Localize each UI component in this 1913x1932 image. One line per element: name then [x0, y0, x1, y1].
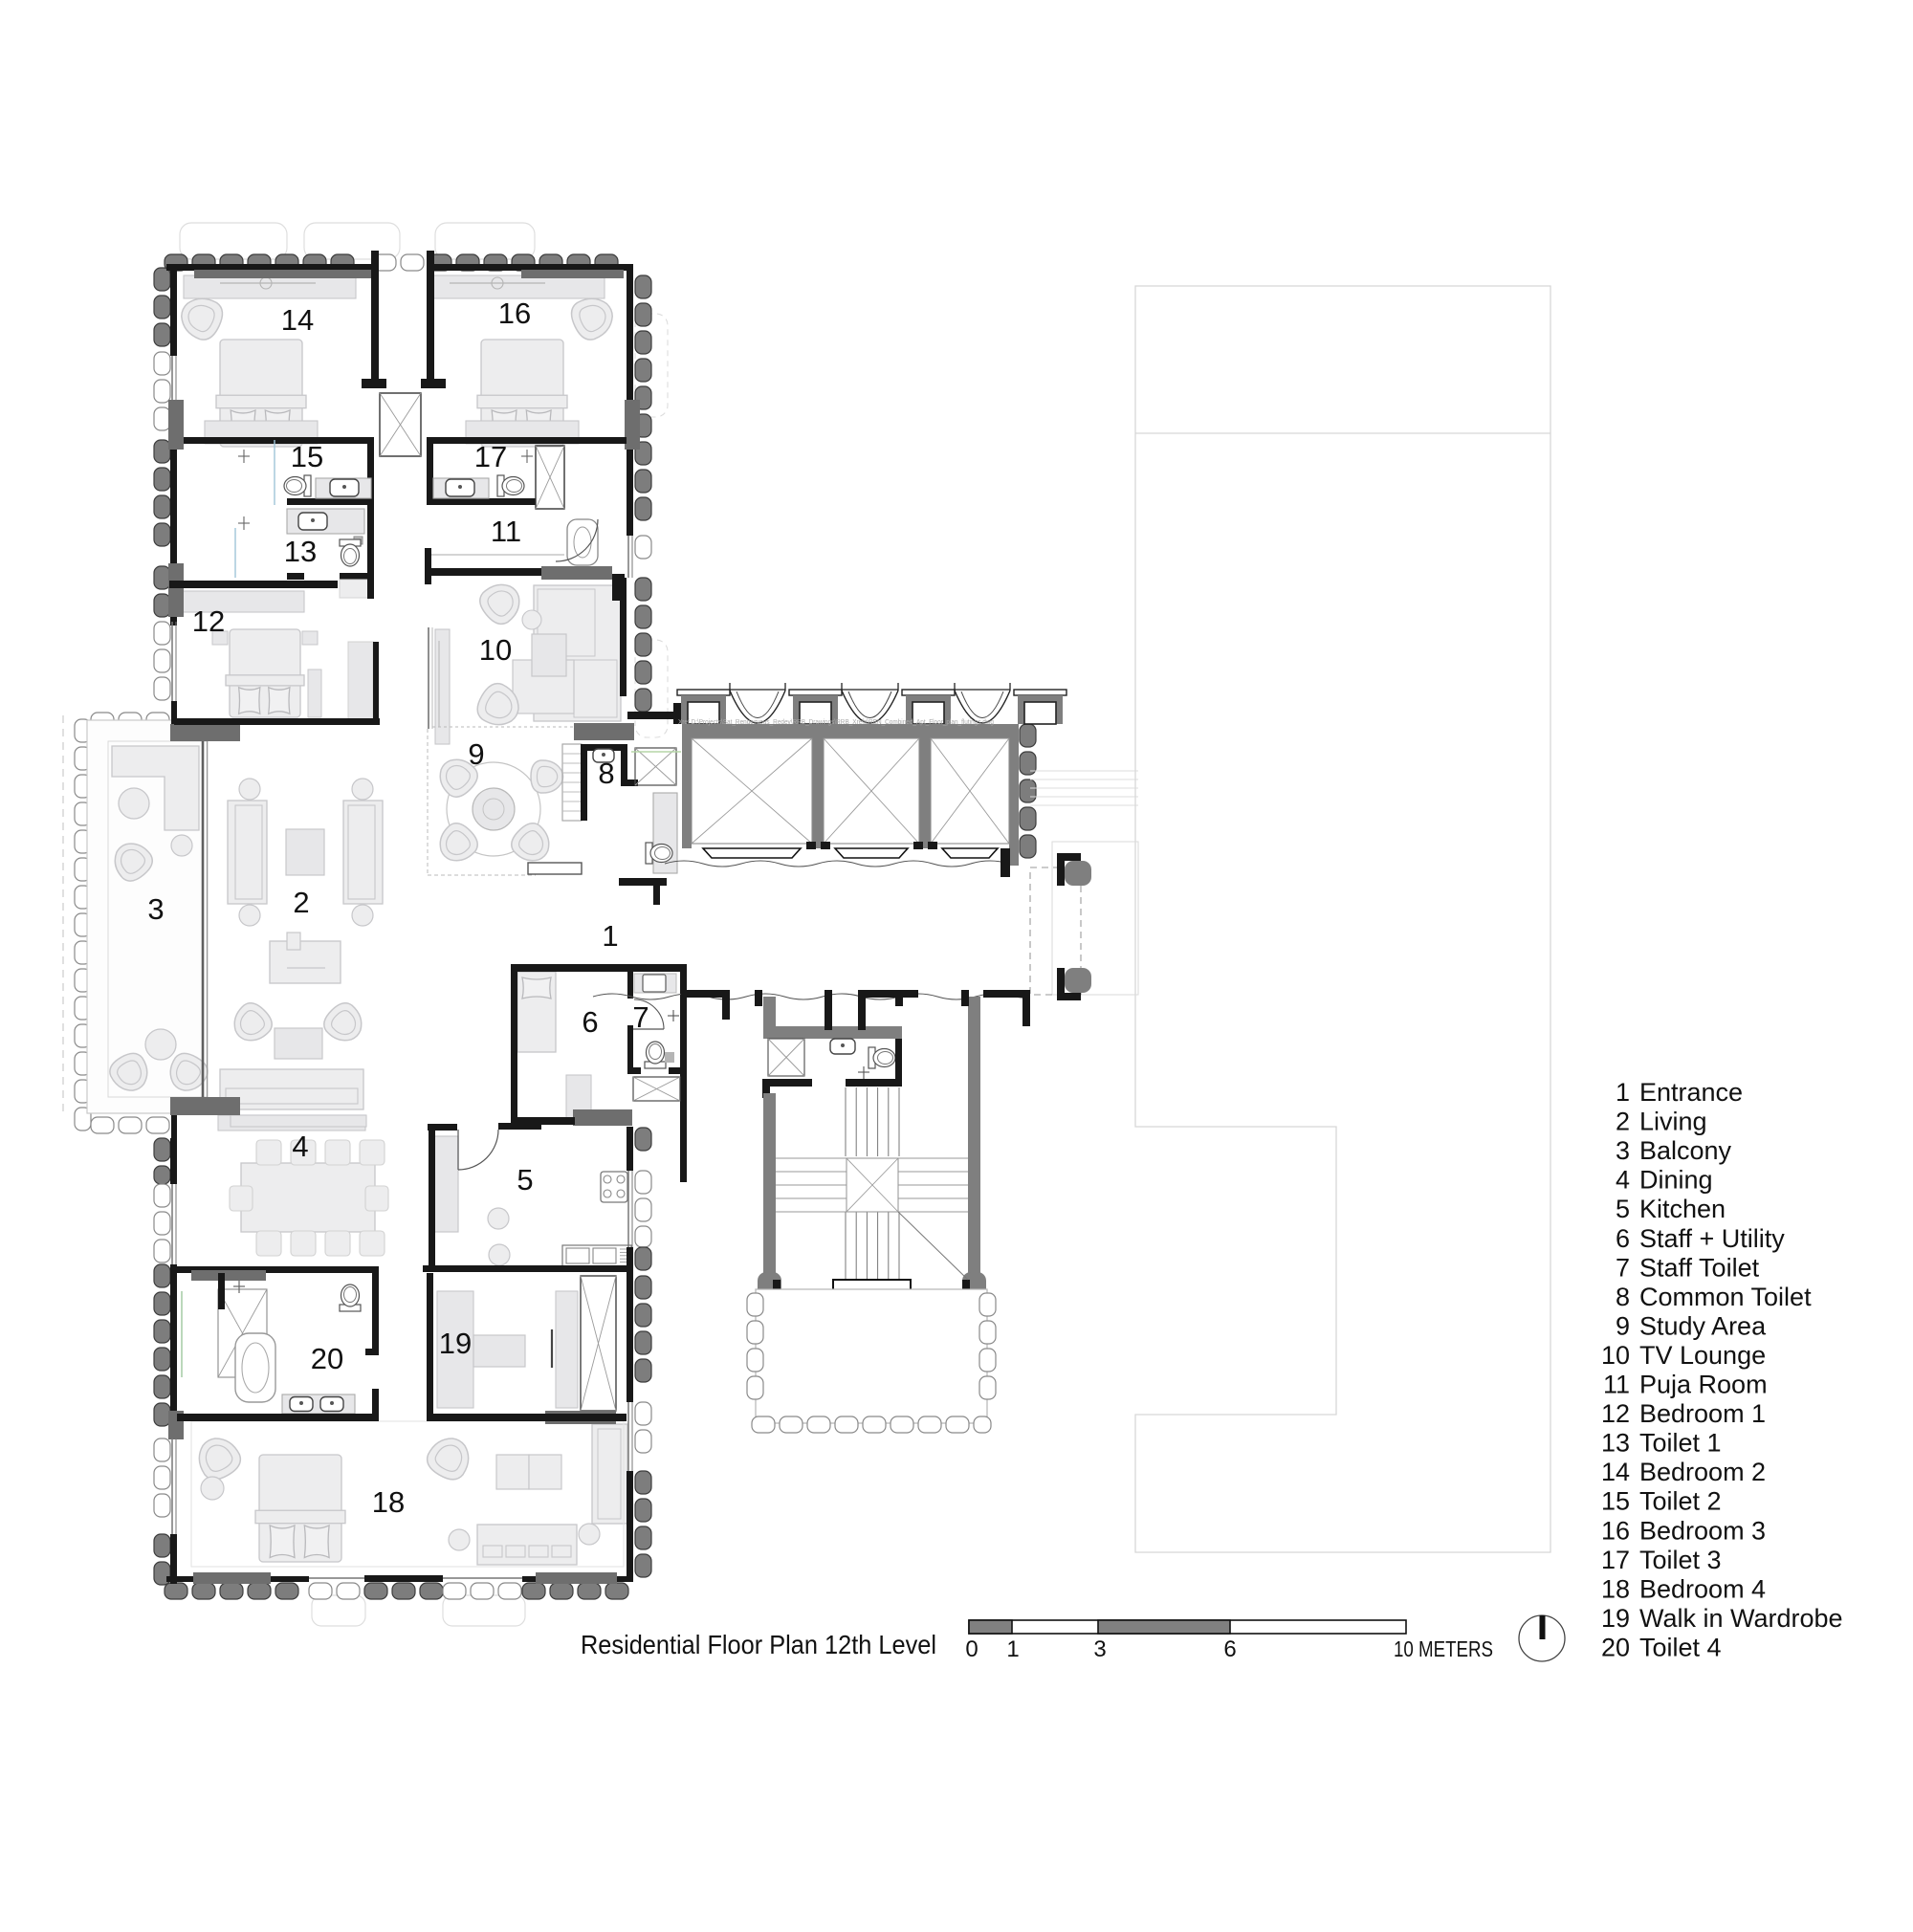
svg-text:Living: Living — [1639, 1108, 1707, 1136]
svg-text:6: 6 — [1223, 1636, 1236, 1662]
svg-text:20: 20 — [311, 1342, 343, 1375]
svg-text:13: 13 — [284, 535, 317, 568]
svg-text:12: 12 — [1601, 1399, 1630, 1428]
svg-text:3: 3 — [147, 892, 164, 926]
svg-text:11: 11 — [491, 515, 521, 548]
svg-text:3: 3 — [1616, 1136, 1630, 1165]
svg-text:Common Toilet: Common Toilet — [1639, 1283, 1812, 1311]
svg-text:2: 2 — [1616, 1108, 1630, 1136]
svg-text:3: 3 — [1093, 1636, 1106, 1662]
svg-text:10 METERS: 10 METERS — [1394, 1636, 1493, 1661]
svg-text:Dining: Dining — [1639, 1166, 1713, 1195]
svg-text:Entrance: Entrance — [1639, 1078, 1743, 1107]
svg-text:0: 0 — [965, 1636, 978, 1662]
svg-text:Toilet 4: Toilet 4 — [1639, 1633, 1722, 1661]
svg-text:TV Lounge: TV Lounge — [1639, 1341, 1766, 1370]
svg-text:18: 18 — [372, 1485, 405, 1519]
svg-text:20: 20 — [1601, 1633, 1630, 1661]
svg-text:16: 16 — [498, 296, 531, 330]
svg-text:9: 9 — [1616, 1311, 1630, 1340]
svg-text:13: 13 — [1601, 1429, 1630, 1458]
svg-text:4: 4 — [1616, 1166, 1630, 1195]
svg-text:14: 14 — [1601, 1458, 1630, 1486]
svg-text:12: 12 — [192, 604, 225, 638]
svg-text:Puja Room: Puja Room — [1639, 1371, 1768, 1399]
svg-text:Toilet 3: Toilet 3 — [1639, 1546, 1722, 1574]
svg-text:Balcony: Balcony — [1639, 1136, 1732, 1165]
svg-text:16: 16 — [1601, 1516, 1630, 1545]
svg-text:1: 1 — [602, 919, 618, 953]
svg-text:11: 11 — [1603, 1371, 1630, 1399]
svg-text:Study Area: Study Area — [1639, 1311, 1767, 1340]
svg-text:18: 18 — [1601, 1574, 1630, 1603]
svg-text:Bedroom 4: Bedroom 4 — [1639, 1574, 1766, 1603]
svg-text:1: 1 — [1616, 1078, 1630, 1107]
svg-text:Bedroom 3: Bedroom 3 — [1639, 1516, 1766, 1545]
svg-text:Toilet 1: Toilet 1 — [1639, 1429, 1722, 1458]
svg-text:15: 15 — [291, 440, 323, 473]
svg-text:8: 8 — [598, 757, 614, 790]
svg-text:Staff + Utility: Staff + Utility — [1639, 1224, 1785, 1253]
svg-text:9: 9 — [468, 737, 484, 771]
svg-text:6: 6 — [1616, 1224, 1630, 1253]
svg-text:14: 14 — [281, 303, 314, 337]
svg-text:7: 7 — [632, 1000, 649, 1034]
svg-text:15: 15 — [1601, 1487, 1630, 1516]
svg-text:Xref D:\Projects\Sat_Rendezvou: Xref D:\Projects\Sat_Rendezvous_Redev\RR… — [678, 717, 994, 726]
svg-text:5: 5 — [1616, 1195, 1630, 1223]
svg-text:Bedroom 2: Bedroom 2 — [1639, 1458, 1766, 1486]
svg-text:7: 7 — [1616, 1253, 1630, 1282]
svg-text:10: 10 — [1601, 1341, 1630, 1370]
svg-text:Toilet 2: Toilet 2 — [1639, 1487, 1722, 1516]
svg-text:19: 19 — [439, 1327, 472, 1360]
svg-text:17: 17 — [1601, 1546, 1630, 1574]
svg-text:19: 19 — [1601, 1604, 1630, 1633]
svg-text:8: 8 — [1616, 1283, 1630, 1311]
svg-text:6: 6 — [582, 1005, 598, 1039]
svg-text:5: 5 — [517, 1163, 533, 1197]
svg-text:Bedroom 1: Bedroom 1 — [1639, 1399, 1766, 1428]
svg-text:Walk in Wardrobe: Walk in Wardrobe — [1639, 1604, 1843, 1633]
svg-text:Kitchen: Kitchen — [1639, 1195, 1726, 1223]
svg-text:10: 10 — [479, 633, 512, 667]
svg-text:17: 17 — [474, 440, 507, 473]
svg-text:2: 2 — [293, 886, 309, 919]
svg-text:1: 1 — [1006, 1636, 1019, 1662]
svg-text:Residential Floor Plan 12th Le: Residential Floor Plan 12th Level — [581, 1630, 936, 1659]
svg-text:4: 4 — [292, 1130, 308, 1163]
svg-text:Staff Toilet: Staff Toilet — [1639, 1253, 1760, 1282]
